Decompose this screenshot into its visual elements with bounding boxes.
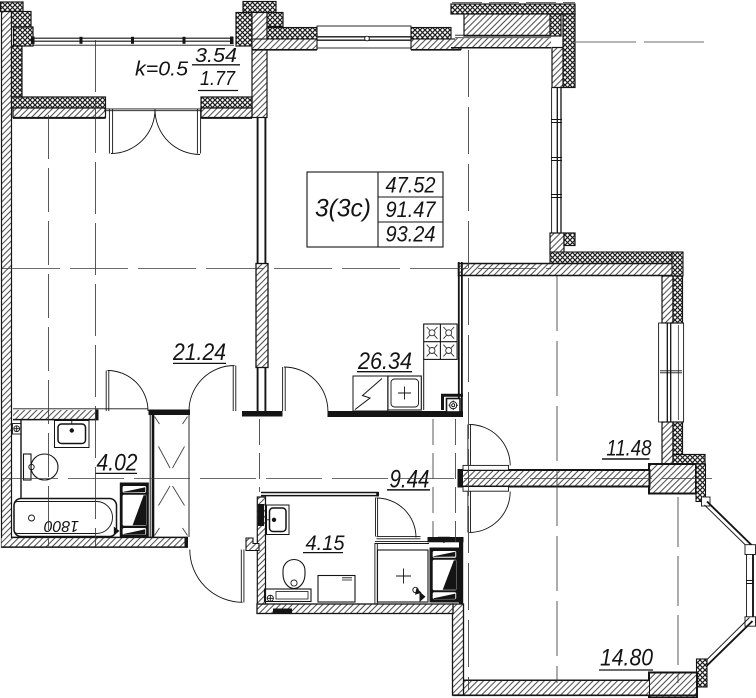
svg-text:k=0.5: k=0.5: [135, 59, 189, 81]
svg-text:3(3c): 3(3c): [315, 195, 371, 223]
svg-text:4.02: 4.02: [97, 450, 138, 477]
svg-text:93.24: 93.24: [386, 222, 436, 247]
svg-text:91.47: 91.47: [386, 197, 437, 222]
svg-text:3.54: 3.54: [195, 44, 237, 67]
svg-text:4.15: 4.15: [306, 532, 345, 555]
svg-text:1.77: 1.77: [200, 67, 236, 90]
svg-text:26.34: 26.34: [357, 348, 412, 375]
svg-text:14.80: 14.80: [600, 645, 654, 672]
svg-text:1800: 1800: [44, 517, 79, 534]
svg-text:21.24: 21.24: [172, 339, 226, 366]
svg-text:11.48: 11.48: [606, 436, 651, 461]
svg-text:47.52: 47.52: [386, 173, 436, 198]
